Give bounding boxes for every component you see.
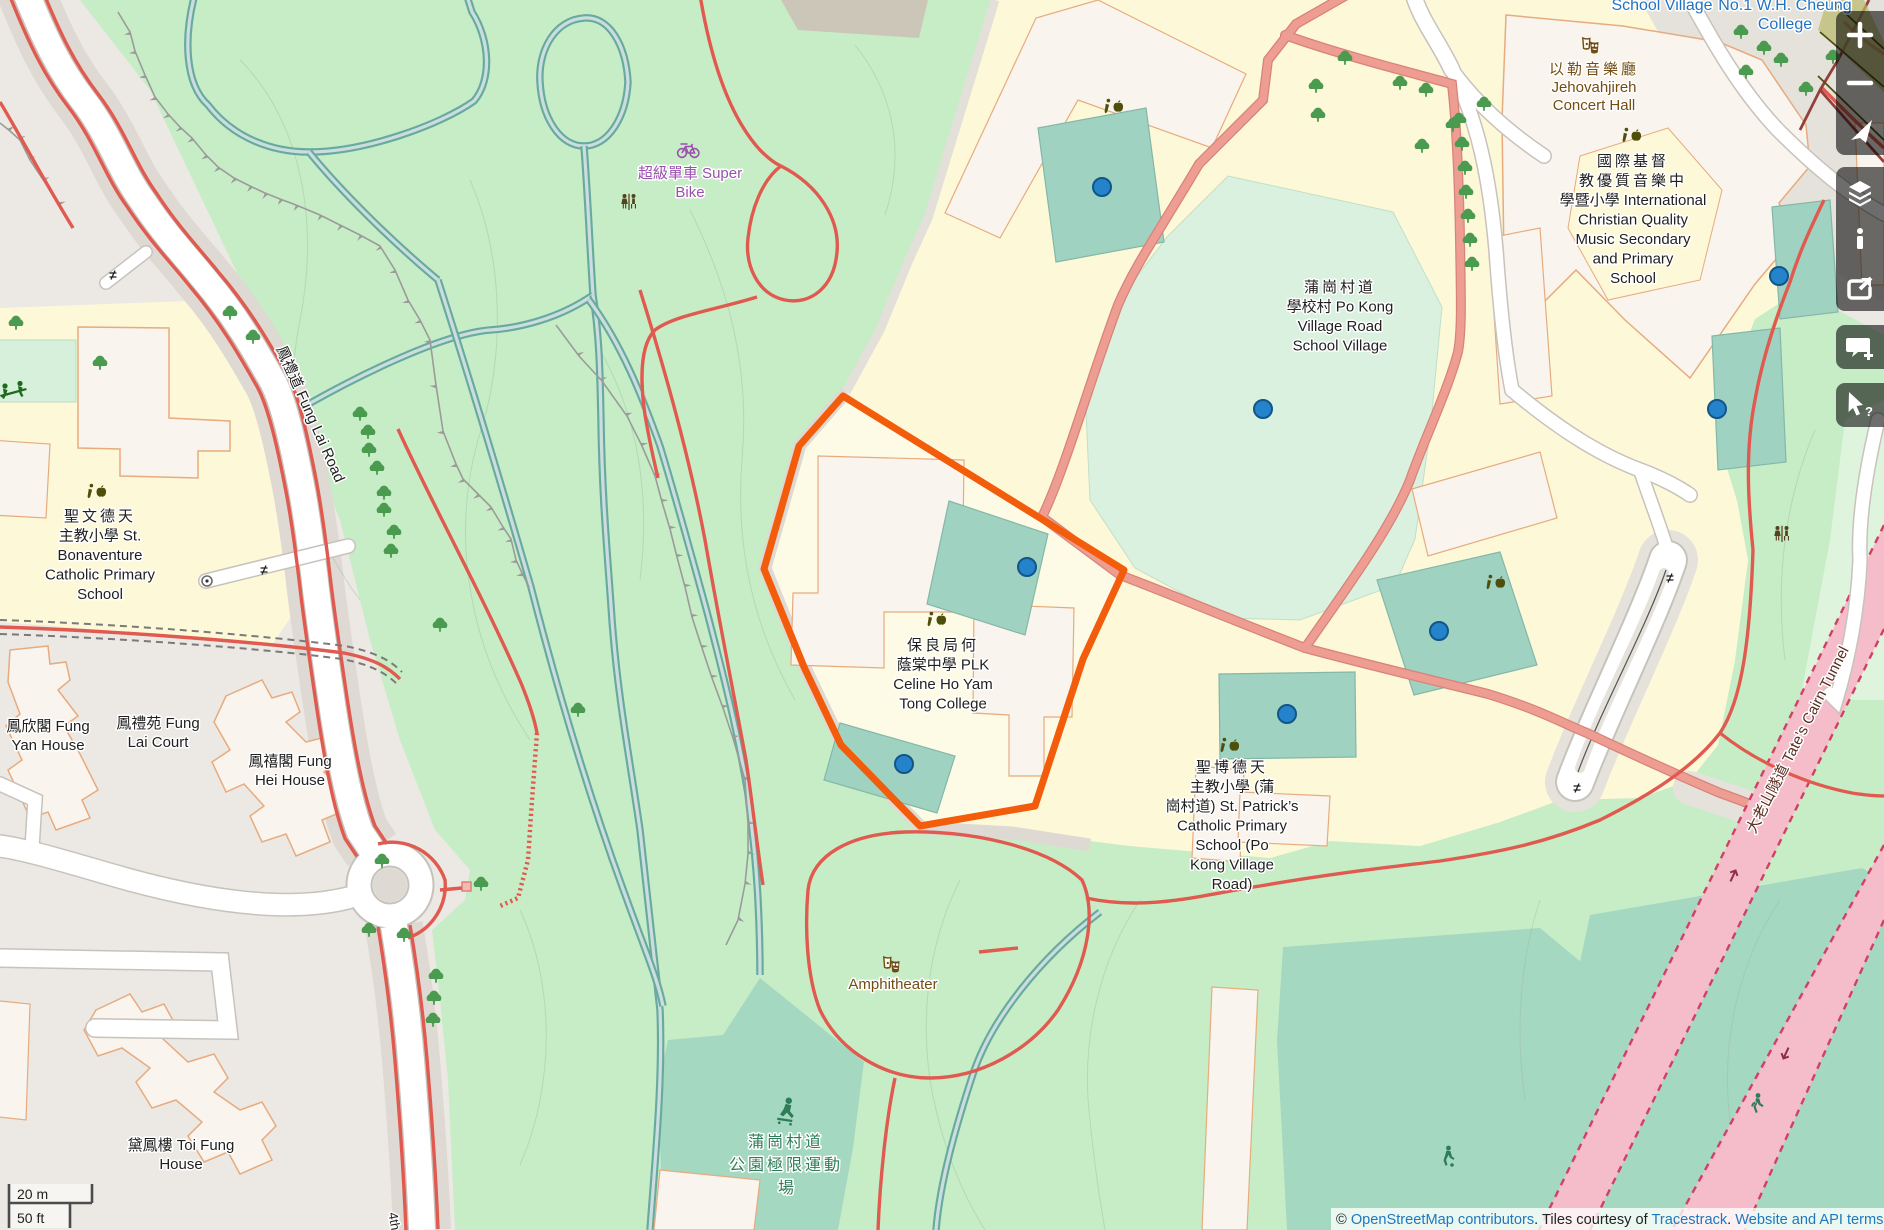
svg-text:No.1 W.H. Cheung: No.1 W.H. Cheung bbox=[1718, 0, 1851, 14]
svg-text:Tong College: Tong College bbox=[899, 696, 987, 713]
svg-text:鳳禧閣 Fung: 鳳禧閣 Fung bbox=[248, 753, 331, 770]
svg-text:超級單車 Super: 超級單車 Super bbox=[638, 165, 742, 182]
svg-text:學校村 Po Kong: 學校村 Po Kong bbox=[1287, 298, 1394, 316]
svg-text:學暨小學 International: 學暨小學 International bbox=[1560, 191, 1707, 209]
svg-text:教優質音樂中: 教優質音樂中 bbox=[1579, 172, 1687, 190]
svg-text:School (Po: School (Po bbox=[1195, 837, 1268, 854]
svg-text:公園極限運動: 公園極限運動 bbox=[729, 1156, 843, 1174]
svg-text:主教小學 St.: 主教小學 St. bbox=[59, 527, 142, 545]
svg-text:Kong Village: Kong Village bbox=[1190, 857, 1274, 874]
svg-text:Christian Quality: Christian Quality bbox=[1578, 212, 1689, 229]
svg-text:Bike: Bike bbox=[675, 184, 704, 201]
svg-text:保良局何: 保良局何 bbox=[907, 637, 979, 654]
svg-text:School Village: School Village bbox=[1611, 0, 1712, 14]
svg-text:Catholic Primary: Catholic Primary bbox=[1177, 818, 1288, 835]
svg-text:蒲崗村道: 蒲崗村道 bbox=[1304, 279, 1376, 296]
svg-text:Bonaventure: Bonaventure bbox=[57, 547, 142, 564]
svg-text:黛鳳樓 Toi Fung: 黛鳳樓 Toi Fung bbox=[128, 1137, 235, 1154]
svg-text:Concert Hall: Concert Hall bbox=[1553, 97, 1636, 114]
svg-text:Village Road: Village Road bbox=[1298, 318, 1383, 335]
svg-text:國際基督: 國際基督 bbox=[1597, 153, 1669, 170]
svg-text:and Primary: and Primary bbox=[1593, 251, 1674, 268]
svg-text:Music Secondary: Music Secondary bbox=[1575, 231, 1691, 248]
svg-text:Amphitheater: Amphitheater bbox=[848, 976, 937, 993]
svg-text:蔭棠中學 PLK: 蔭棠中學 PLK bbox=[897, 656, 990, 674]
svg-text:鳳欣閣 Fung: 鳳欣閣 Fung bbox=[6, 718, 89, 735]
svg-text:School Village: School Village bbox=[1293, 338, 1388, 355]
svg-text:?: ? bbox=[1865, 404, 1873, 419]
svg-text:College: College bbox=[1758, 16, 1812, 33]
svg-text:50 ft: 50 ft bbox=[17, 1210, 44, 1226]
svg-text:4th: 4th bbox=[385, 1211, 403, 1230]
svg-text:© OpenStreetMap contributors.: © OpenStreetMap contributors. Tiles cour… bbox=[1336, 1212, 1883, 1228]
svg-text:鳳禮苑 Fung: 鳳禮苑 Fung bbox=[116, 715, 199, 732]
svg-text:Celine Ho Yam: Celine Ho Yam bbox=[893, 676, 993, 693]
svg-text:School: School bbox=[1610, 270, 1656, 287]
svg-text:以勒音樂廳: 以勒音樂廳 bbox=[1549, 60, 1639, 78]
svg-text:Lai Court: Lai Court bbox=[128, 734, 190, 751]
svg-text:聖博德天: 聖博德天 bbox=[1196, 758, 1268, 776]
svg-text:場: 場 bbox=[778, 1179, 794, 1197]
svg-text:Road): Road) bbox=[1212, 876, 1253, 893]
svg-text:School: School bbox=[77, 586, 123, 603]
svg-text:Jehovahjireh: Jehovahjireh bbox=[1551, 79, 1636, 96]
svg-text:Yan House: Yan House bbox=[11, 737, 84, 754]
svg-text:House: House bbox=[159, 1156, 202, 1173]
svg-text:20 m: 20 m bbox=[17, 1186, 48, 1202]
svg-text:聖文德天: 聖文德天 bbox=[64, 507, 136, 525]
svg-text:崗村道) St. Patrick’s: 崗村道) St. Patrick’s bbox=[1165, 798, 1298, 815]
svg-text:蒲崗村道: 蒲崗村道 bbox=[748, 1133, 824, 1151]
svg-text:Hei House: Hei House bbox=[255, 772, 325, 789]
svg-text:主教小學 (蒲: 主教小學 (蒲 bbox=[1190, 778, 1274, 796]
svg-text:Catholic Primary: Catholic Primary bbox=[45, 567, 156, 584]
